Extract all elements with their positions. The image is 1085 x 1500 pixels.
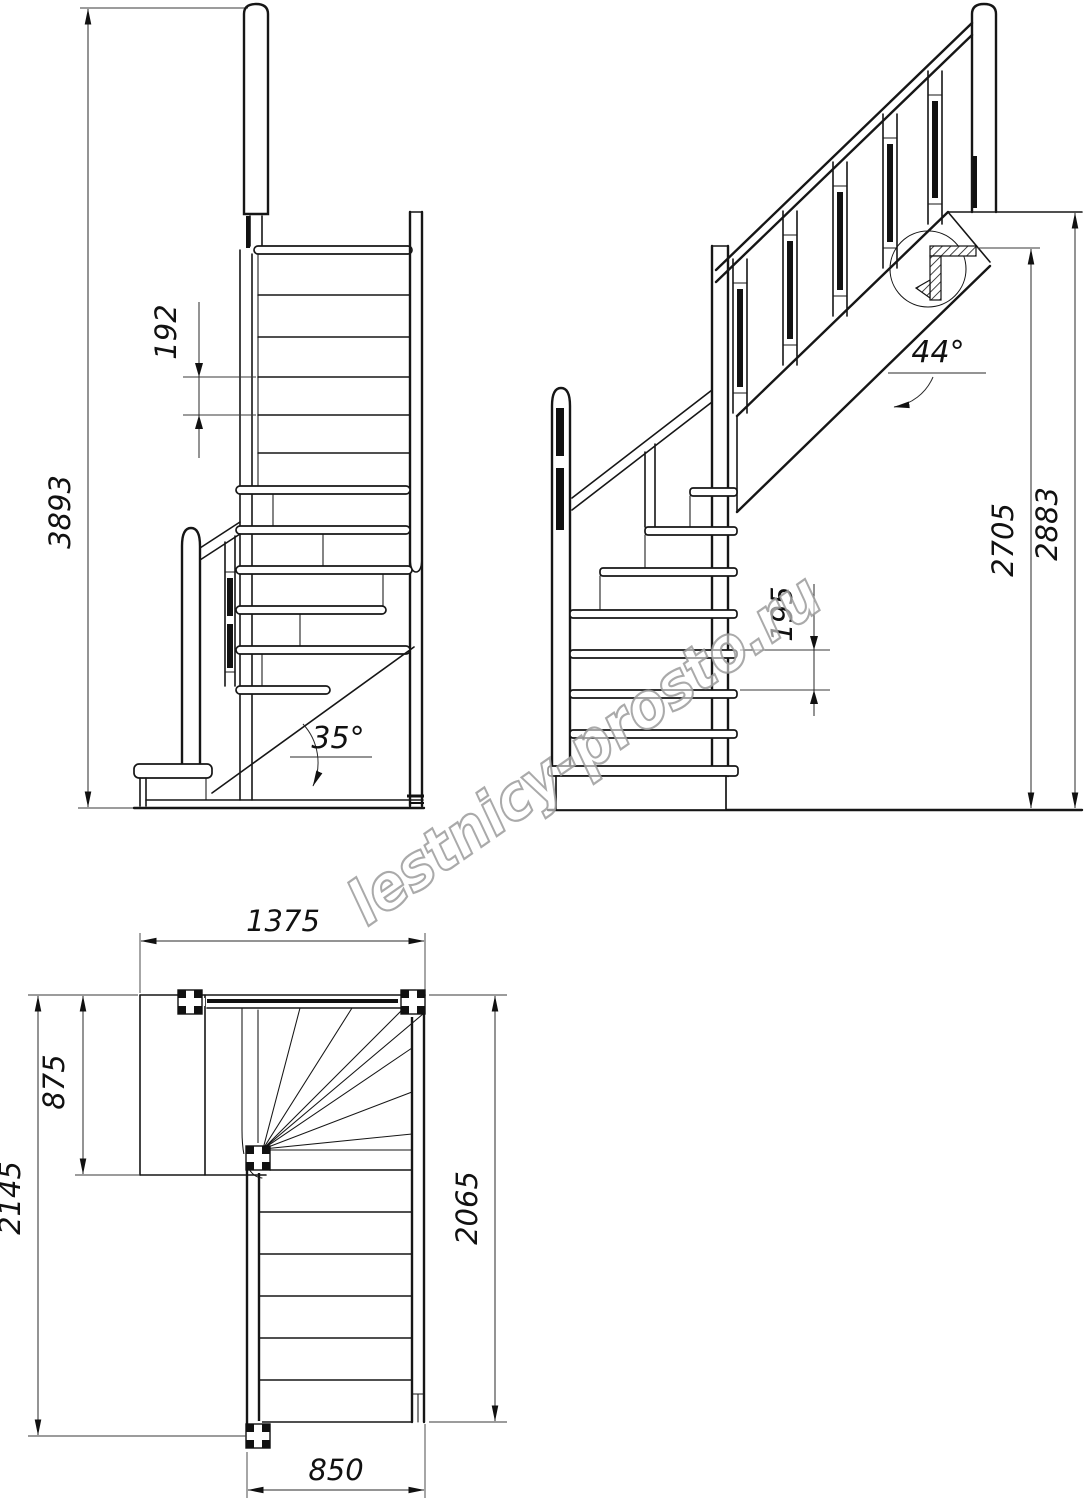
dim-label-850: 850 — [308, 1453, 363, 1487]
winder-fan-plan — [258, 1008, 423, 1150]
right-stringer-plan — [412, 1010, 424, 1422]
dim-label-2065: 2065 — [450, 1171, 484, 1245]
dim-label-1375: 1375 — [246, 904, 320, 938]
dim-label-875: 875 — [37, 1054, 71, 1109]
blueprint-sheet: 3893 — [0, 0, 1085, 1500]
dim-label-2883: 2883 — [1030, 487, 1064, 561]
post-top-left-plan — [175, 987, 205, 1017]
dim-label-2705: 2705 — [986, 503, 1020, 577]
dimension-total-height: 3893 — [43, 8, 248, 808]
lower-newel-post-front — [182, 528, 200, 766]
straight-flight-plan — [247, 1170, 412, 1424]
dimension-850: 850 — [247, 1424, 425, 1498]
lower-handrail-front — [200, 522, 240, 560]
first-step-front — [134, 764, 212, 778]
dimension-875: 875 — [37, 996, 140, 1175]
dim-label-angle-44: 44° — [911, 335, 964, 370]
post-bottom-plan — [243, 1421, 273, 1451]
baluster-front — [225, 536, 235, 686]
angle-annotation-44: 44° — [888, 335, 986, 407]
step-detail-circle — [890, 231, 976, 307]
post-top-right-plan — [398, 987, 428, 1017]
dimension-2065: 2065 — [429, 995, 507, 1422]
dim-label-total-height: 3893 — [43, 475, 77, 549]
post-center-plan — [243, 1143, 273, 1173]
winder-treads-front — [236, 486, 412, 694]
upper-flight-steps-front — [258, 295, 410, 453]
top-newel-post-side — [972, 4, 996, 212]
dim-label-2145: 2145 — [0, 1161, 27, 1235]
stringer-diagonal-front — [212, 647, 414, 793]
landing-plan — [140, 995, 425, 1178]
landing-edge-front — [254, 246, 412, 254]
dimension-2883: 2883 — [1030, 213, 1075, 808]
angle-annotation-35: 35° — [290, 721, 372, 786]
right-wall-front — [407, 212, 424, 806]
winder-handrail-side — [572, 390, 712, 527]
staircase-technical-drawing: 3893 — [0, 0, 1085, 1500]
top-newel-post-front — [244, 4, 268, 248]
dim-label-angle-35: 35° — [311, 721, 364, 756]
plan-view: 1375 — [0, 904, 507, 1498]
front-elevation-view: 3893 — [43, 4, 424, 808]
dim-label-riser-front: 192 — [149, 304, 183, 359]
